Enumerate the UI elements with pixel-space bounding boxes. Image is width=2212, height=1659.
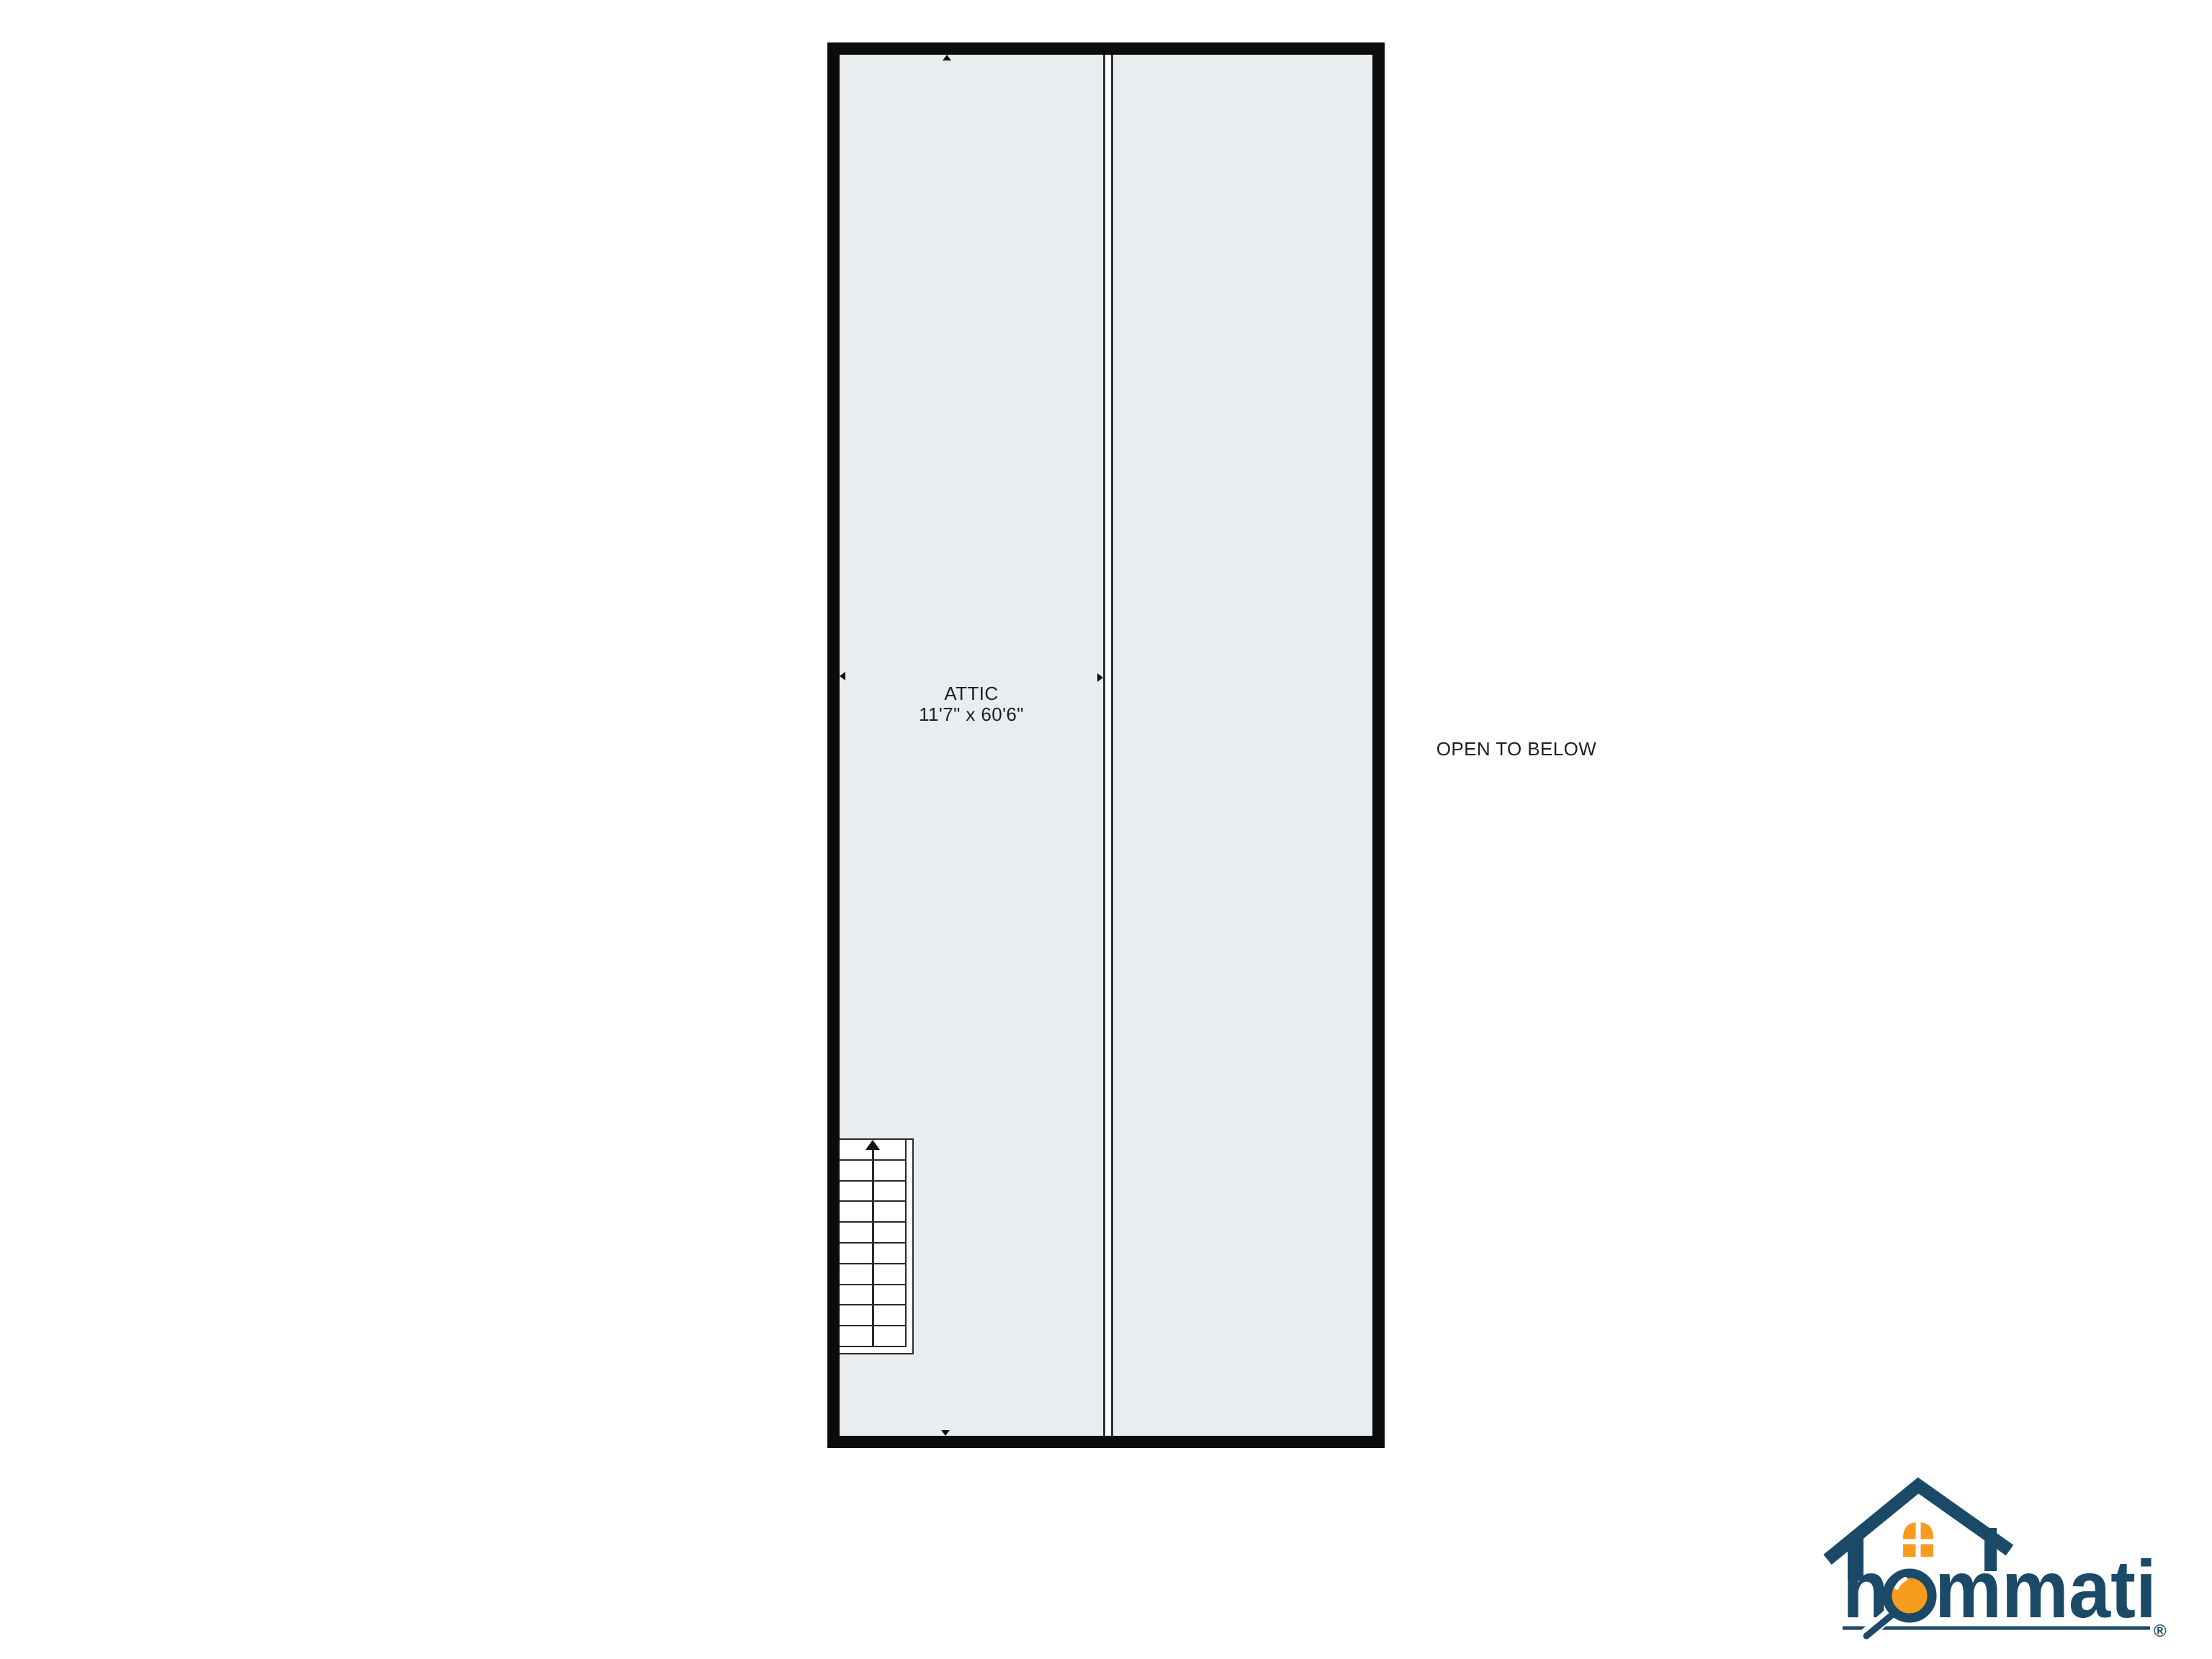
attic-room-label: ATTIC (840, 683, 1103, 704)
staircase-centerline (872, 1150, 874, 1347)
hommati-logo: hommati ® (1800, 1462, 2212, 1659)
dimension-arrow-right-icon (1097, 673, 1103, 682)
dimension-arrow-left-icon (840, 672, 845, 680)
divider-wall (1103, 55, 1113, 1436)
attic-label-block: ATTIC 11'7" x 60'6" (840, 683, 1103, 725)
page-canvas: ATTIC 11'7" x 60'6" OPEN TO BELOW (0, 0, 2212, 1659)
staircase-up-arrow-icon (866, 1140, 880, 1150)
magnifier-lens-icon (1887, 1573, 1932, 1618)
hommati-logo-graphic: hommati ® (1800, 1462, 2212, 1659)
floorplan-interior: ATTIC 11'7" x 60'6" OPEN TO BELOW (840, 55, 1372, 1436)
open-to-below-label: OPEN TO BELOW (1387, 738, 1646, 760)
dimension-arrow-up-icon (943, 55, 951, 60)
floorplan-outline: ATTIC 11'7" x 60'6" OPEN TO BELOW (827, 42, 1385, 1448)
registered-trademark-symbol: ® (2154, 1622, 2167, 1641)
room-open-to-below: OPEN TO BELOW (1113, 55, 1372, 1436)
dimension-arrow-down-icon (941, 1430, 950, 1436)
attic-room-dimensions: 11'7" x 60'6" (840, 704, 1103, 725)
